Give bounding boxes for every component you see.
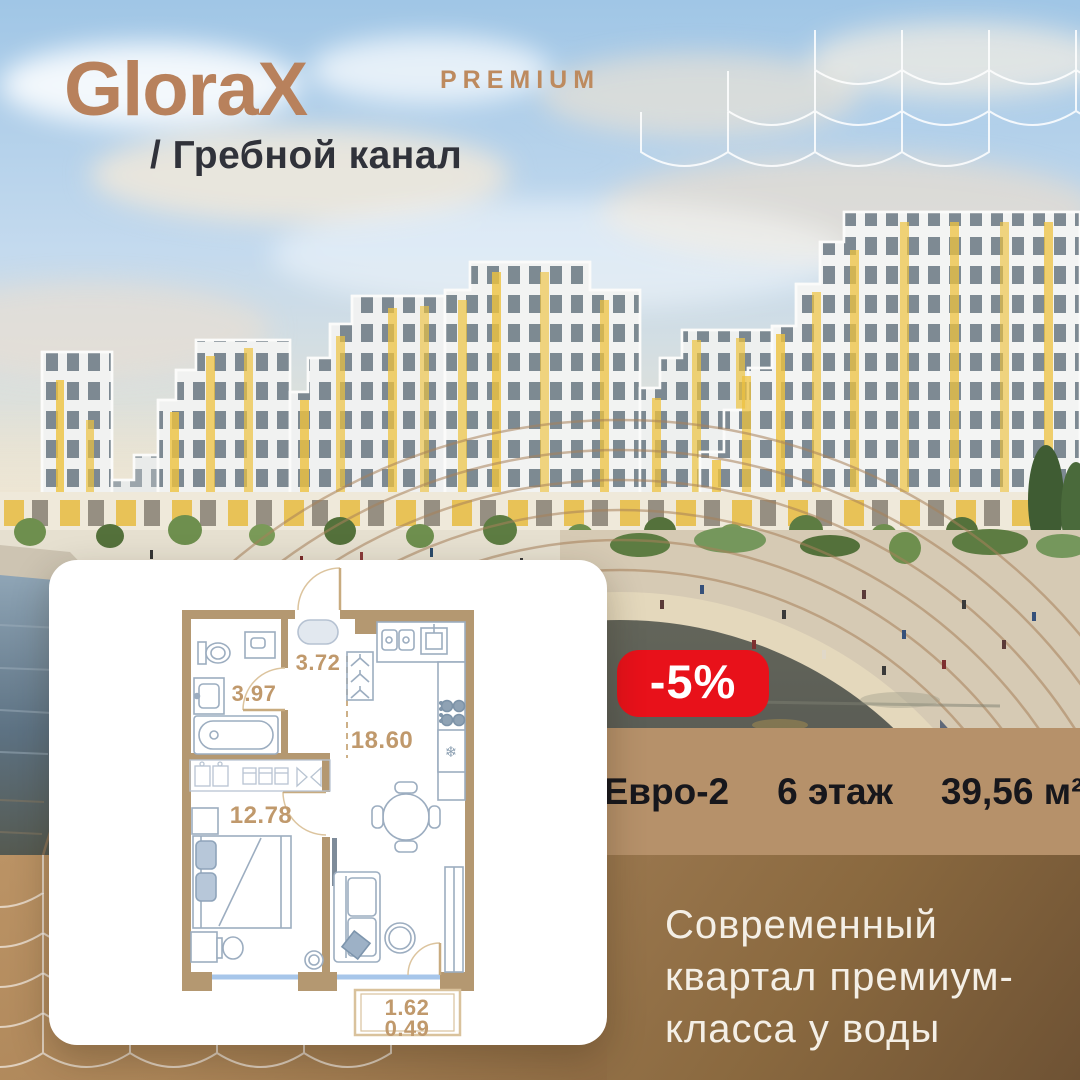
unit-area: 39,56 м² bbox=[941, 771, 1080, 813]
fridge-snowflake-icon: ❄ bbox=[445, 744, 458, 761]
balcony-area-reduced-label: 0.49 bbox=[385, 1016, 430, 1041]
tagline-line-1: Современный bbox=[665, 899, 1014, 951]
nightstand bbox=[192, 808, 218, 834]
desk-chair bbox=[191, 932, 243, 962]
fridge: ❄ bbox=[438, 730, 465, 772]
pouf bbox=[385, 923, 415, 953]
floor-plan: ❄ bbox=[49, 560, 607, 1045]
sofa bbox=[334, 872, 380, 962]
kitchen-living-area-label: 18.60 bbox=[351, 727, 414, 754]
floor-plan-card: ❄ bbox=[49, 560, 607, 1045]
plant bbox=[305, 951, 323, 969]
hallway-area-label: 3.72 bbox=[296, 650, 341, 675]
project-name: / Гребной канал bbox=[150, 136, 462, 175]
coat-wardrobe bbox=[347, 652, 373, 700]
ad-banner: GloraX PREMIUM / Гребной канал Евро-2 6 … bbox=[0, 0, 1080, 1080]
storefront-band bbox=[0, 492, 1080, 530]
unit-type: Евро-2 bbox=[604, 771, 730, 813]
hall-light bbox=[298, 620, 338, 644]
tagline-line-3: класса у воды bbox=[665, 1003, 1014, 1055]
logo-premium-label: PREMIUM bbox=[440, 68, 600, 93]
toilet bbox=[198, 642, 230, 664]
bathtub bbox=[194, 716, 278, 754]
bathroom-area-label: 3.97 bbox=[232, 681, 277, 706]
tagline-line-2: квартал премиум- bbox=[665, 951, 1014, 1003]
tagline-panel: Современный квартал премиум- класса у во… bbox=[607, 855, 1080, 1080]
kitchen-counter bbox=[377, 622, 465, 800]
shelf-column bbox=[445, 867, 463, 972]
building-tall-center bbox=[445, 262, 640, 522]
discount-badge: -5% bbox=[617, 650, 769, 717]
logo-glorax: GloraX bbox=[64, 52, 307, 128]
balcony-door bbox=[408, 943, 440, 975]
bath-shelf bbox=[245, 632, 275, 658]
bedroom-area-label: 12.78 bbox=[230, 802, 293, 829]
tagline-text: Современный квартал премиум- класса у во… bbox=[665, 899, 1014, 1055]
dining-table bbox=[372, 782, 440, 852]
discount-value: -5% bbox=[650, 658, 737, 709]
unit-floor: 6 этаж bbox=[777, 771, 893, 813]
sink bbox=[194, 678, 224, 714]
bed bbox=[193, 836, 291, 928]
unit-info-bar: Евро-2 6 этаж 39,56 м² bbox=[607, 728, 1080, 855]
entrance-door bbox=[298, 568, 340, 610]
wardrobe-row bbox=[190, 760, 330, 791]
